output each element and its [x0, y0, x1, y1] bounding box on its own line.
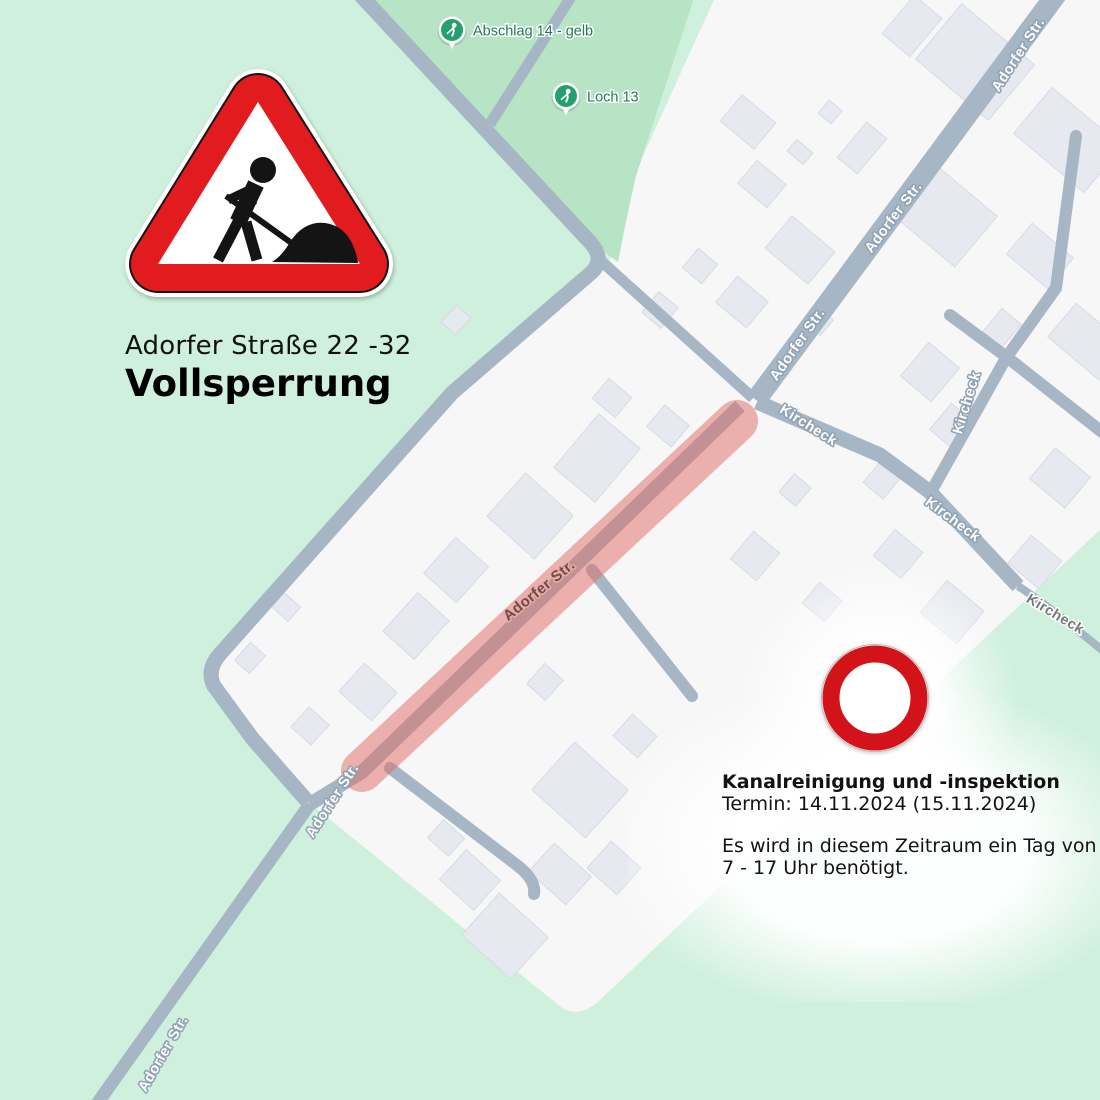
- no-vehicles-sign-icon: [818, 641, 932, 760]
- construction-notice-canvas: Adorfer Str.Adorfer Str.Adorfer Str.Ador…: [0, 0, 1100, 1100]
- closure-type-label: Vollsperrung: [125, 362, 412, 405]
- info-title: Kanalreinigung und -inspektion: [722, 772, 1100, 794]
- info-date: Termin: 14.11.2024 (15.11.2024): [722, 794, 1100, 816]
- golf-marker-label: Loch 13: [587, 90, 639, 106]
- street-range-label: Adorfer Straße 22 -32: [125, 331, 412, 361]
- roadworks-sign-icon: [122, 60, 394, 313]
- golf-marker-label: Abschlag 14 - gelb: [473, 24, 593, 40]
- headline: Adorfer Straße 22 -32 Vollsperrung: [125, 331, 412, 405]
- info-body-line1: Es wird in diesem Zeitraum ein Tag von: [722, 835, 1097, 857]
- info-body: Es wird in diesem Zeitraum ein Tag von 7…: [722, 836, 1100, 879]
- info-body-line2: 7 - 17 Uhr benötigt.: [722, 857, 909, 879]
- closure-info-block: Kanalreinigung und -inspektion Termin: 1…: [722, 772, 1100, 879]
